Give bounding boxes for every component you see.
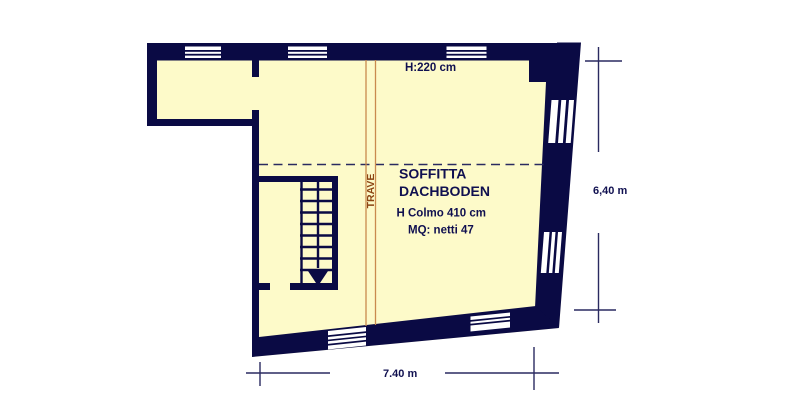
svg-text:SOFFITTA: SOFFITTA [399, 166, 466, 182]
svg-text:DACHBODEN: DACHBODEN [399, 183, 490, 199]
svg-text:TRAVE: TRAVE [365, 174, 377, 209]
svg-text:7.40 m: 7.40 m [383, 368, 417, 380]
svg-text:H Colmo 410 cm: H Colmo 410 cm [397, 208, 486, 220]
svg-text:6,40 m: 6,40 m [593, 185, 627, 197]
svg-text:MQ: netti 47: MQ: netti 47 [408, 225, 474, 237]
svg-text:H:220 cm: H:220 cm [405, 62, 456, 74]
